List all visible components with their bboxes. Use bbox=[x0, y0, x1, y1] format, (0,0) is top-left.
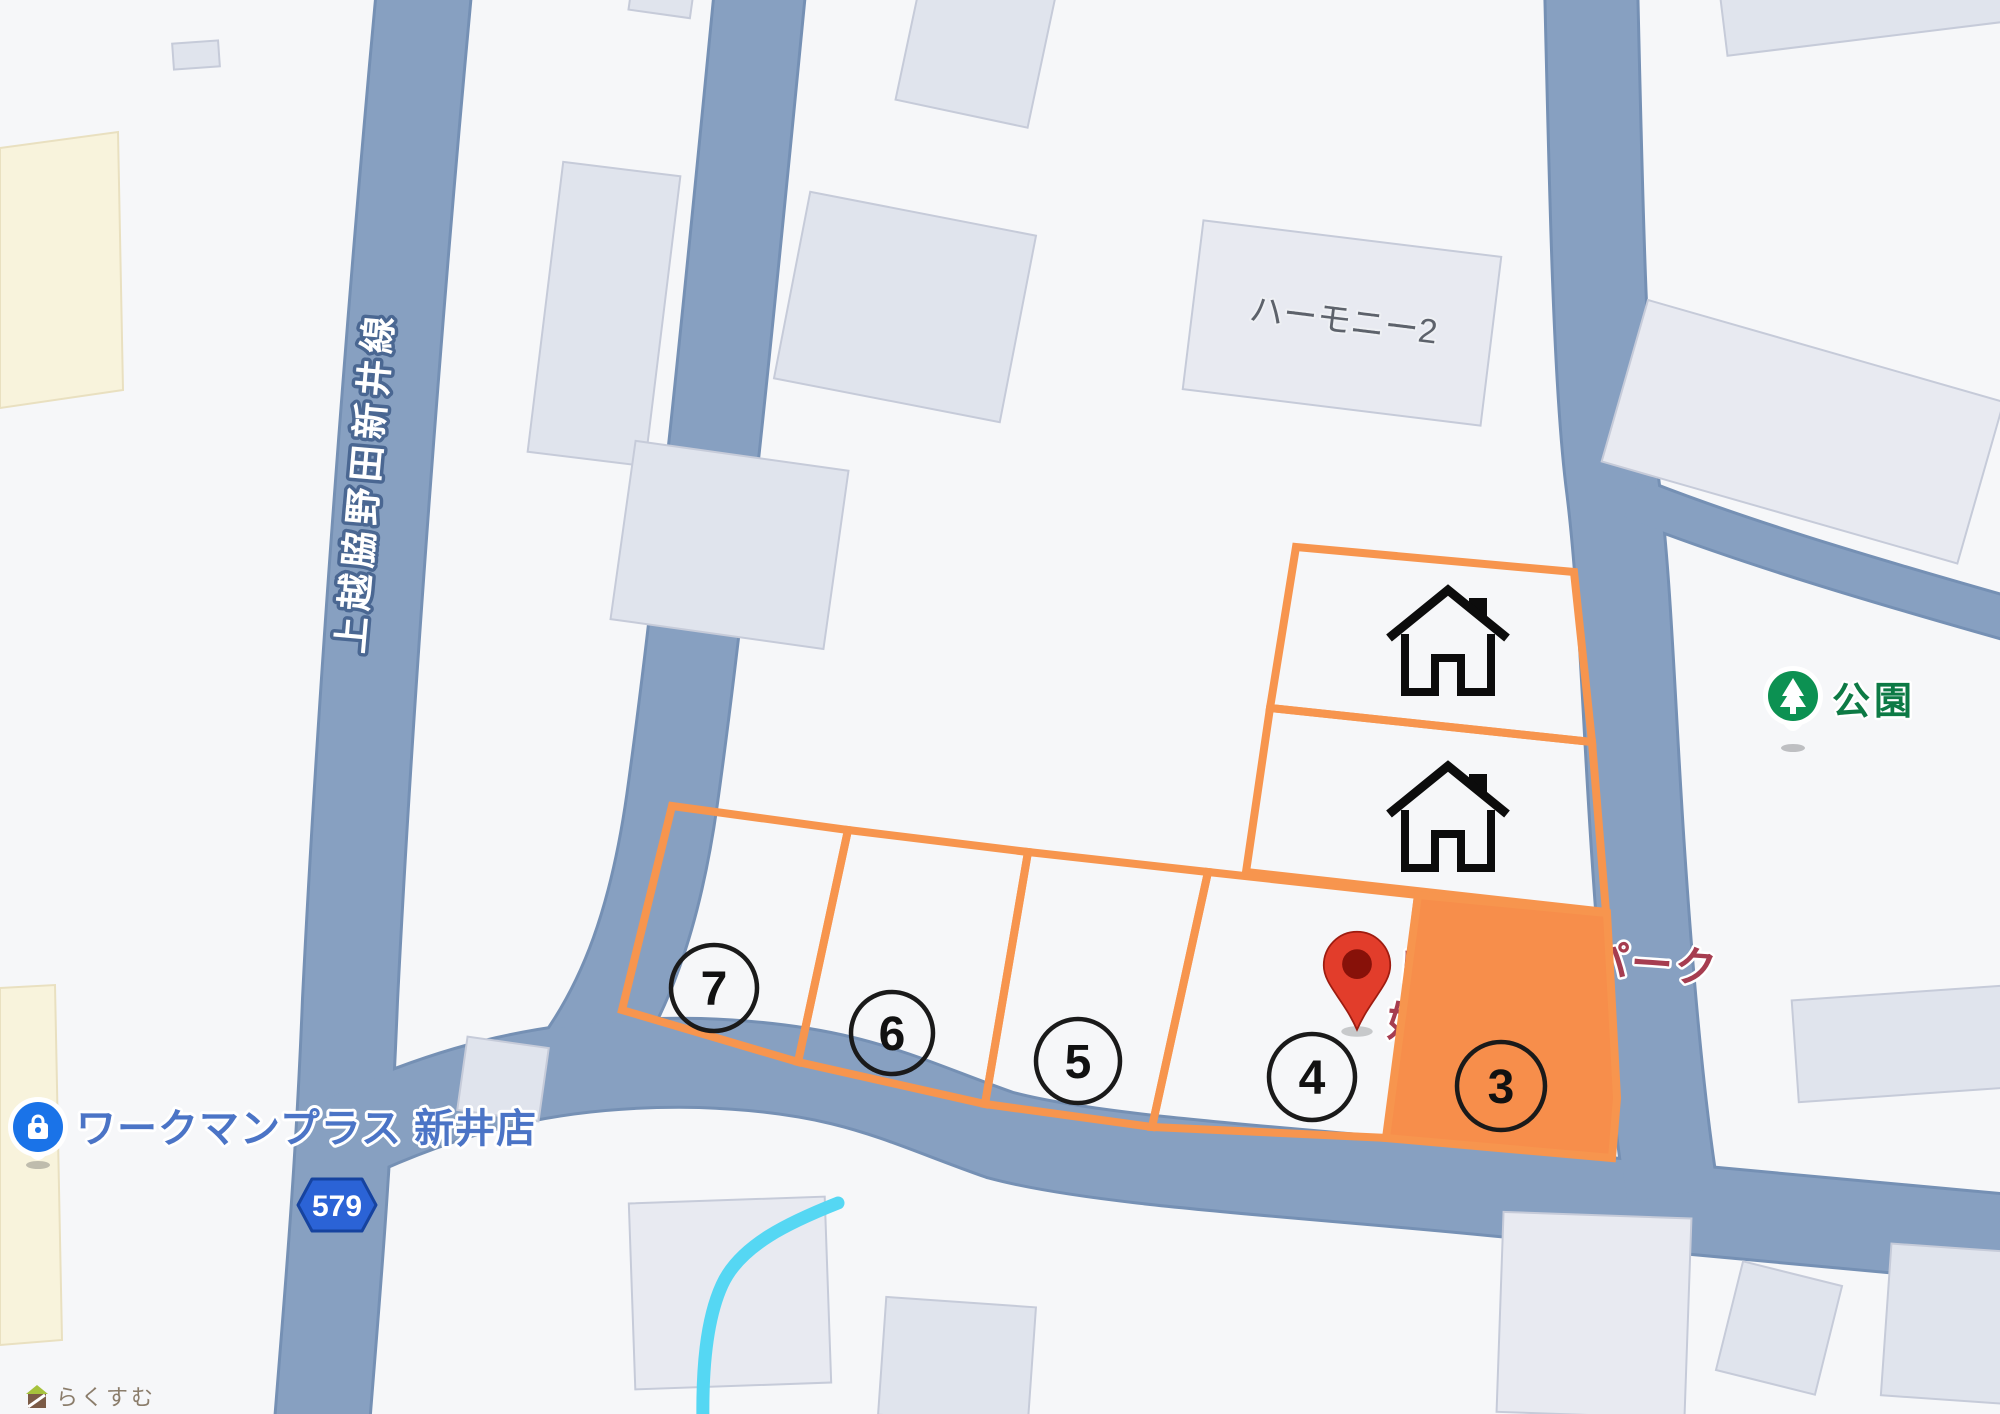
building bbox=[1792, 985, 2000, 1102]
building bbox=[611, 441, 849, 649]
lot-3[interactable] bbox=[1386, 895, 1617, 1158]
lot-number-label: 5 bbox=[1065, 1036, 1092, 1089]
route-shield: 579 bbox=[298, 1179, 376, 1231]
building bbox=[1881, 1244, 2000, 1405]
lot-number-label: 3 bbox=[1488, 1061, 1515, 1114]
pin-shadow bbox=[26, 1161, 50, 1169]
park-name-label: 公園 bbox=[1832, 681, 1916, 723]
pin-shadow bbox=[1781, 744, 1805, 752]
store-name-label: ワークマンプラス 新井店 bbox=[76, 1107, 537, 1151]
route-number-label: 579 bbox=[312, 1190, 362, 1223]
bag-dot bbox=[35, 1127, 41, 1133]
beige-area-top-left bbox=[0, 132, 123, 408]
building bbox=[878, 1297, 1036, 1414]
map-base: 上越脇野田新井線 ハーモニー2 レ 妙 パーク 7 6 bbox=[0, 0, 2000, 1414]
lot-number-label: 7 bbox=[701, 963, 728, 1016]
building bbox=[172, 40, 220, 69]
lot-number-label: 4 bbox=[1299, 1052, 1326, 1105]
building bbox=[1497, 1212, 1692, 1414]
tree-trunk bbox=[1790, 707, 1796, 714]
lot-number-label: 6 bbox=[879, 1008, 906, 1061]
pin-inner-dot bbox=[1342, 949, 1372, 979]
watermark-label: らくすむ bbox=[56, 1385, 156, 1410]
map-canvas[interactable]: 上越脇野田新井線 ハーモニー2 レ 妙 パーク 7 6 bbox=[0, 0, 2000, 1414]
